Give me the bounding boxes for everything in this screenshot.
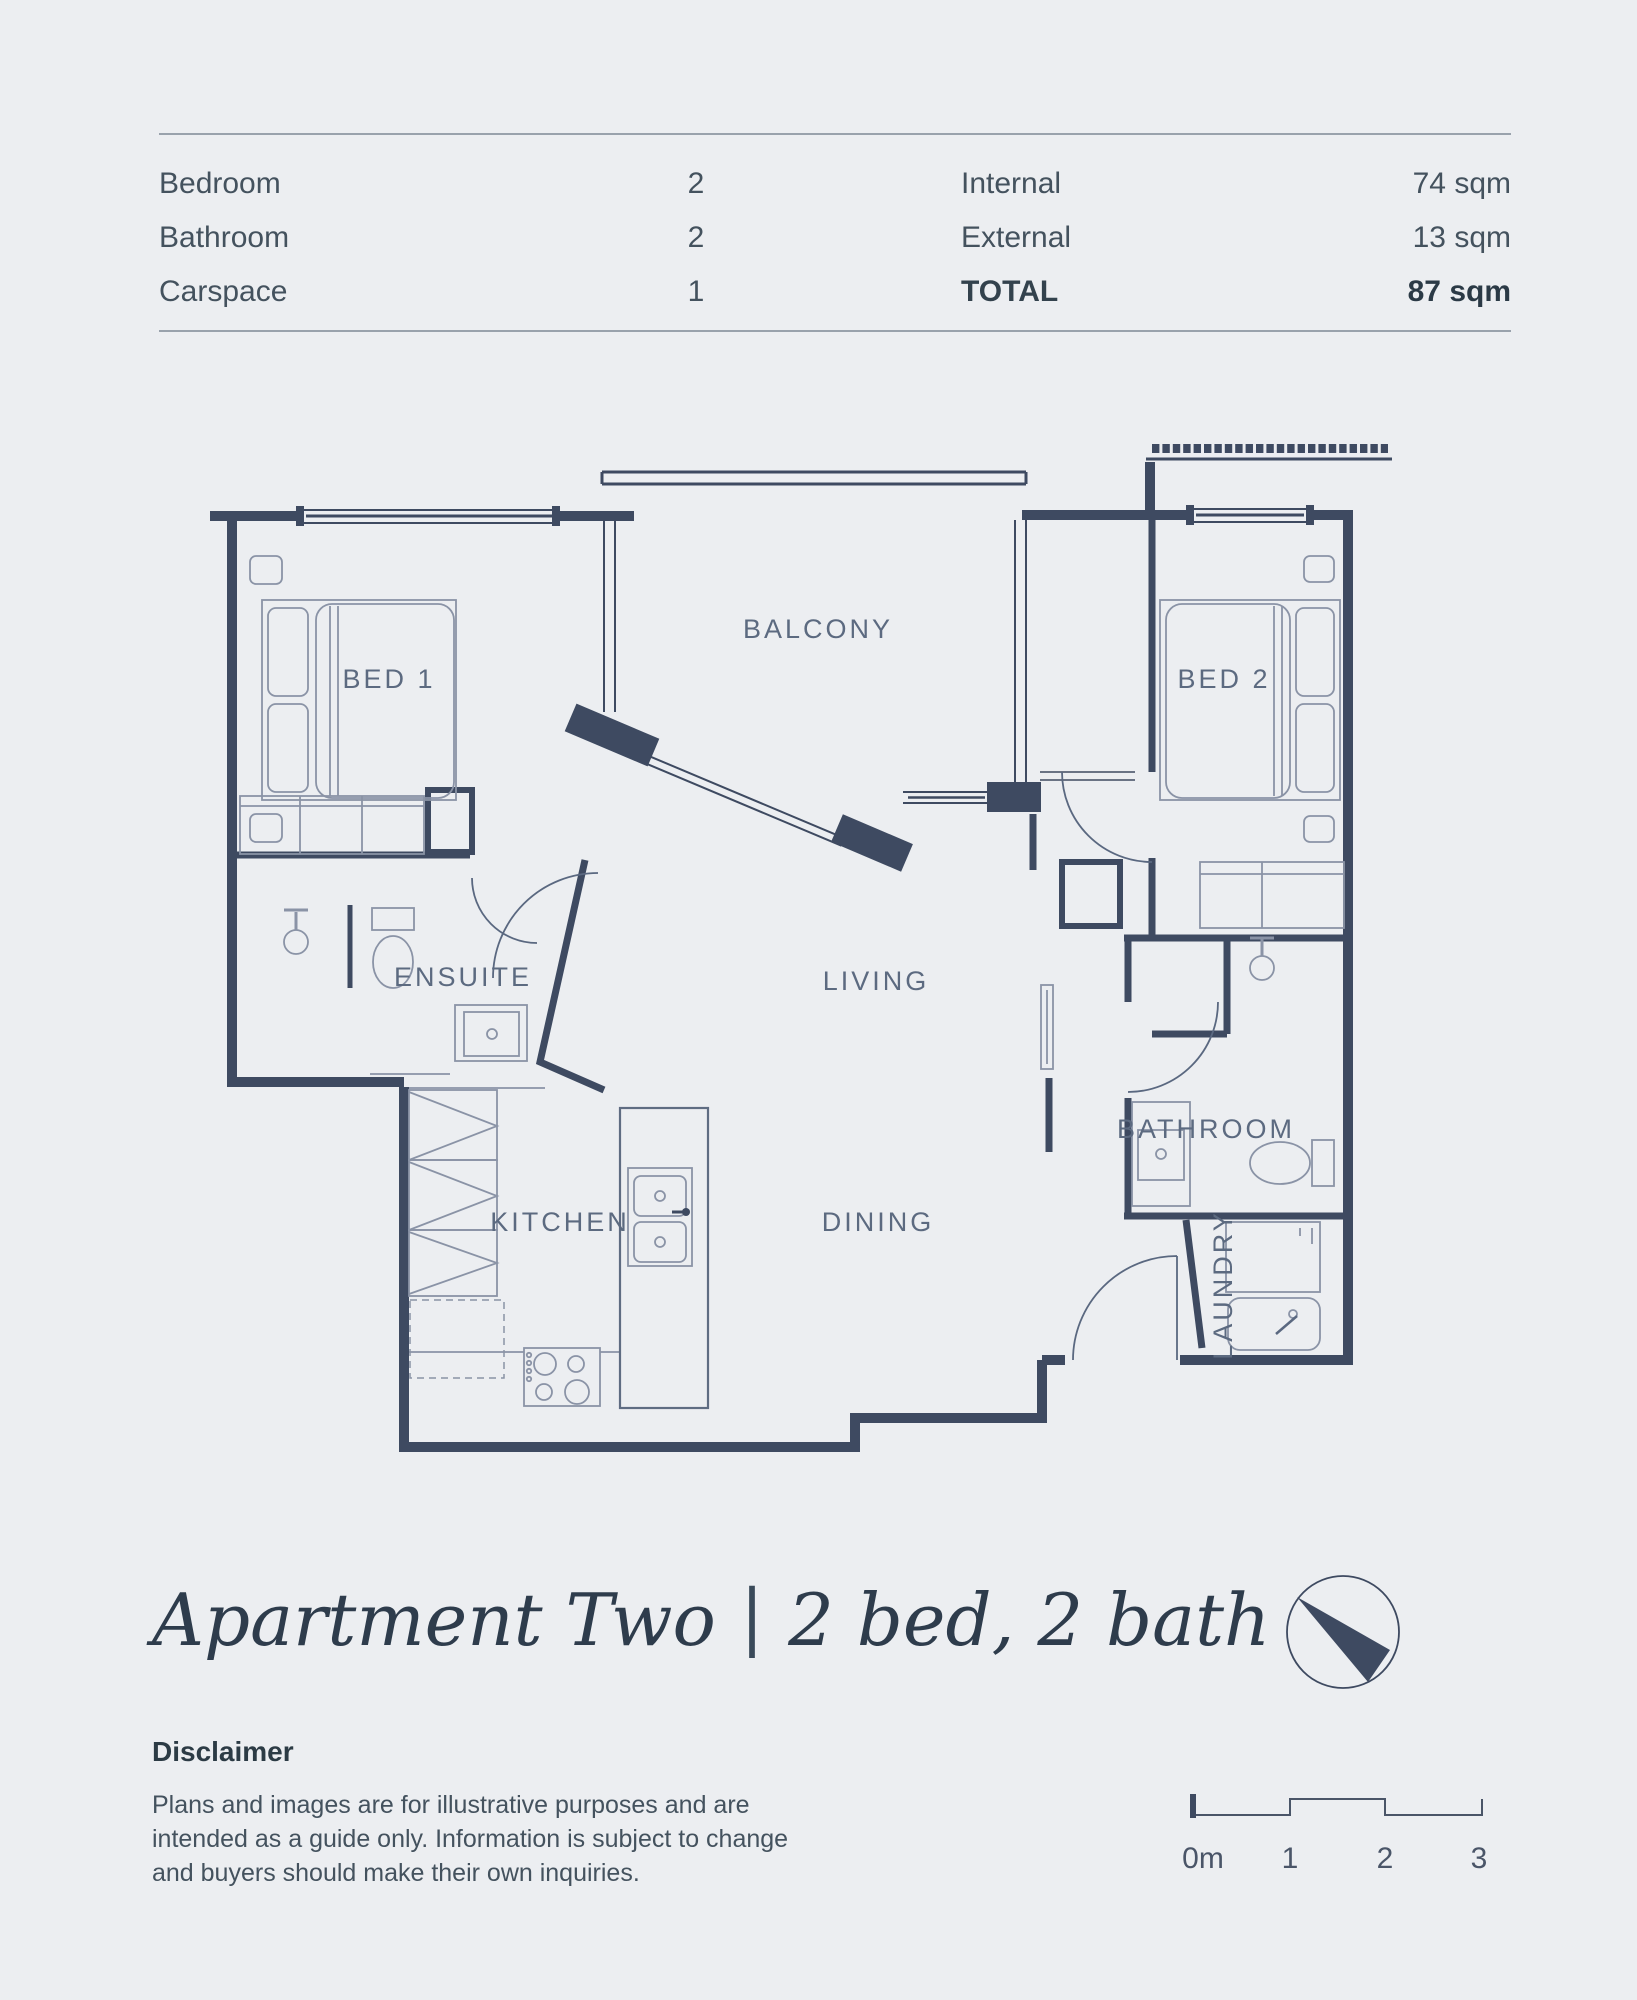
kitchen-fixtures [409, 1088, 708, 1408]
disclaimer-text: Plans and images are for illustrative pu… [152, 1788, 812, 1890]
room-label-bed1: BED 1 [342, 664, 435, 694]
bathroom-fixtures [1132, 938, 1334, 1206]
linen-cupboard [1041, 985, 1053, 1069]
north-compass-icon [1287, 1576, 1399, 1688]
room-label-kitchen: KITCHEN [490, 1207, 630, 1237]
louvre-screen [1152, 444, 1388, 453]
laundry-fixtures [1226, 1222, 1320, 1350]
disclaimer-line: and buyers should make their own inquiri… [152, 1856, 812, 1890]
exterior-walls [210, 462, 1353, 1452]
room-label-laundry: LAUNDRY [1208, 1210, 1238, 1360]
disclaimer-line: intended as a guide only. Information is… [152, 1822, 812, 1856]
room-label-living: LIVING [823, 966, 930, 996]
scale-mark-label: 3 [1471, 1842, 1488, 1875]
apartment-name: Apartment Two [152, 1578, 716, 1662]
room-label-bathroom: BATHROOM [1117, 1114, 1295, 1144]
scale-origin-label: 0m [1182, 1842, 1224, 1875]
scale-mark-label: 2 [1377, 1842, 1394, 1875]
wardrobe2-symbol [1200, 862, 1344, 928]
room-label-ensuite: ENSUITE [394, 962, 532, 992]
scale-bar: 0m 1 2 3 [1182, 1794, 1487, 1875]
windows-glazing [296, 444, 1392, 846]
scale-mark-label: 1 [1282, 1842, 1299, 1875]
title-divider: | [716, 1574, 788, 1658]
bed2-symbol [1160, 556, 1340, 842]
floorplan-sheet: Bedroom 2 Internal 74 sqm Bathroom 2 Ext… [0, 0, 1637, 2000]
apartment-spec: 2 bed, 2 bath [788, 1578, 1270, 1662]
floor-plan: BED 1 BALCONY BED 2 ENSUITE LIVING BATHR… [0, 0, 1637, 2000]
room-label-dining: DINING [822, 1207, 935, 1237]
disclaimer-heading: Disclaimer [152, 1736, 294, 1768]
room-label-bed2: BED 2 [1177, 664, 1270, 694]
disclaimer-line: Plans and images are for illustrative pu… [152, 1788, 812, 1822]
page-title: Apartment Two|2 bed, 2 bath [152, 1578, 1252, 1662]
wardrobe1-symbol [240, 796, 424, 854]
room-label-balcony: BALCONY [743, 614, 893, 644]
